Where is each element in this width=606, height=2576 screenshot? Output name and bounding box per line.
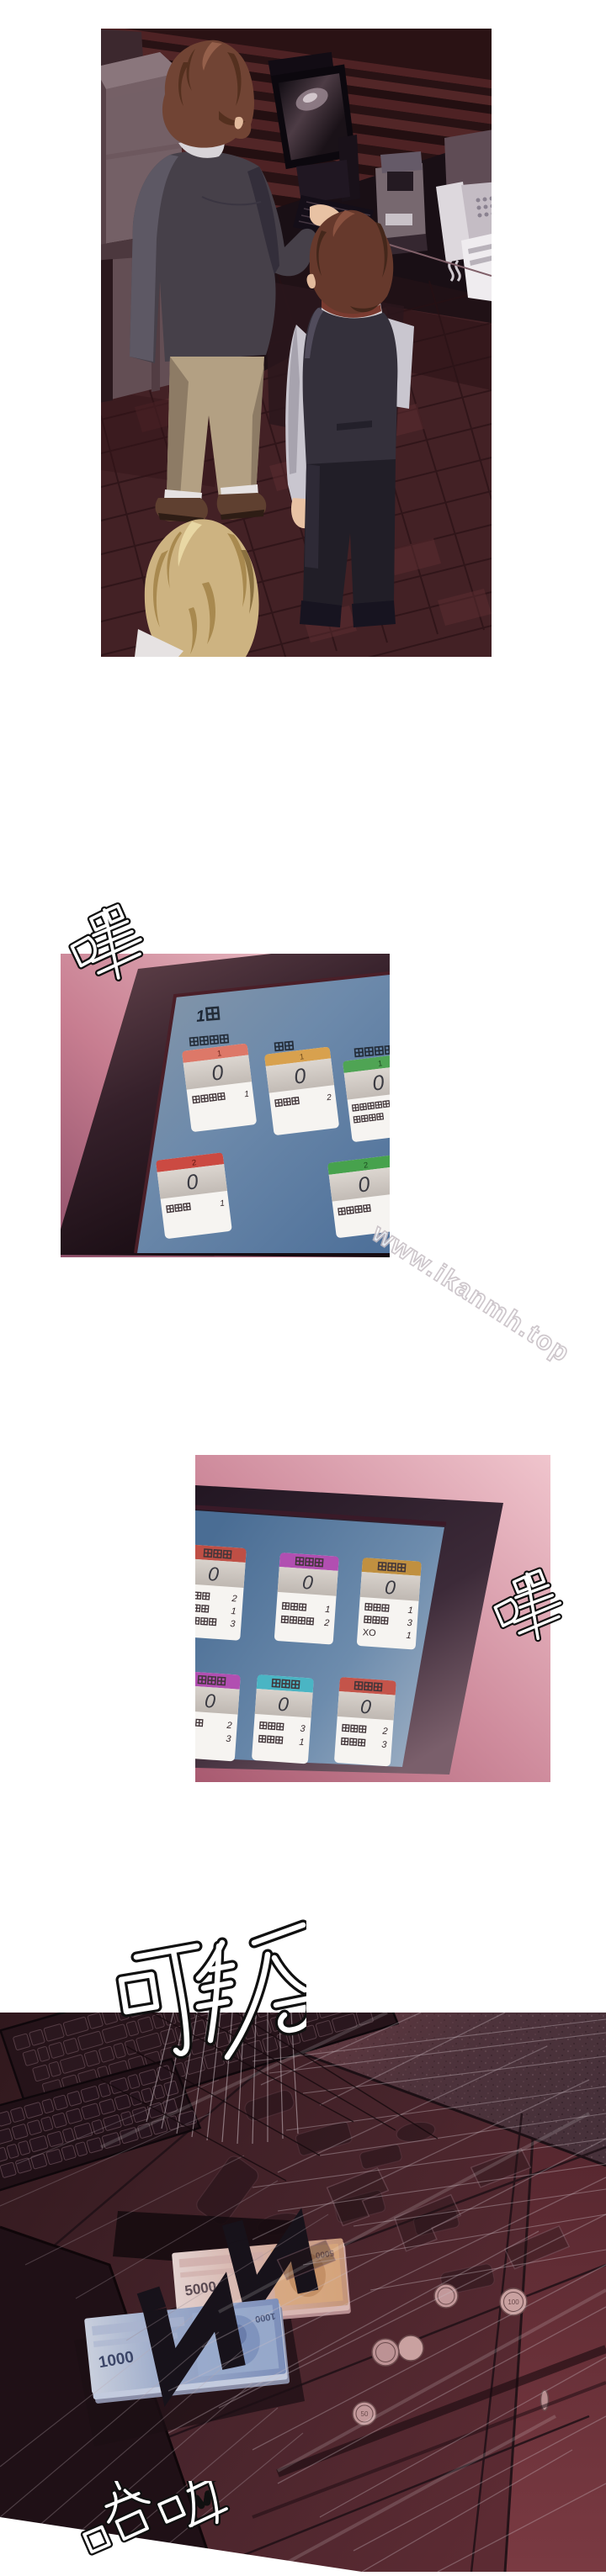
svg-text:1: 1 xyxy=(406,1631,412,1641)
svg-text:1: 1 xyxy=(195,1008,205,1026)
svg-text:1: 1 xyxy=(299,1738,305,1748)
svg-text:0: 0 xyxy=(204,1690,216,1712)
svg-text:50: 50 xyxy=(361,2410,369,2418)
svg-text:XO: XO xyxy=(362,1627,376,1638)
svg-text:0: 0 xyxy=(359,1695,372,1718)
svg-text:2: 2 xyxy=(381,1727,388,1737)
svg-text:0: 0 xyxy=(277,1693,290,1716)
svg-text:0: 0 xyxy=(384,1576,396,1599)
svg-text:2: 2 xyxy=(323,1618,330,1628)
svg-text:2: 2 xyxy=(226,1721,232,1731)
svg-text:1: 1 xyxy=(407,1605,413,1616)
svg-text:1: 1 xyxy=(231,1606,237,1616)
svg-text:0: 0 xyxy=(207,1563,220,1585)
svg-text:1: 1 xyxy=(325,1605,331,1615)
svg-text:www.ikanmh.top: www.ikanmh.top xyxy=(366,1218,576,1368)
svg-text:0: 0 xyxy=(301,1571,314,1594)
svg-text:2: 2 xyxy=(231,1594,237,1604)
svg-text:100: 100 xyxy=(508,2298,519,2306)
